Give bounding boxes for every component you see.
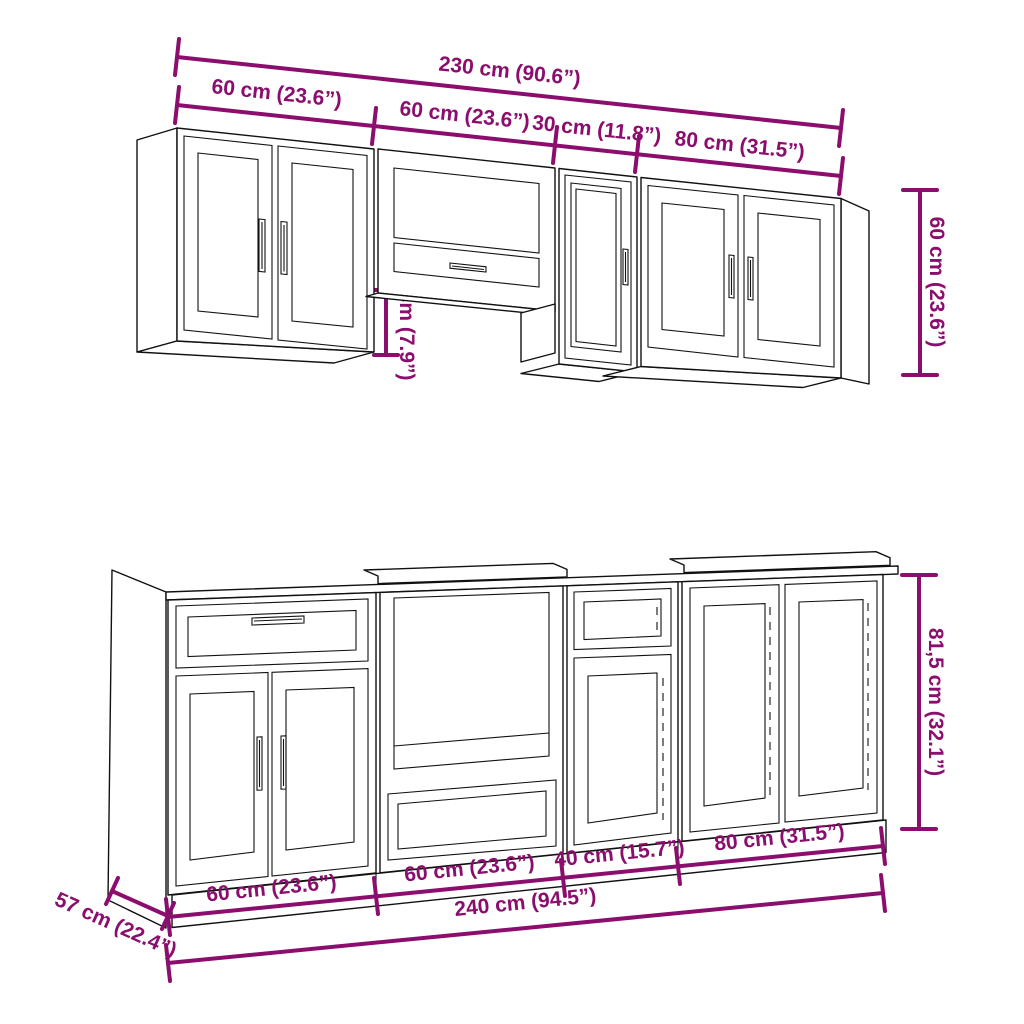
wall-cabinet-60-two-door	[137, 128, 374, 363]
wall-total-width-label: 230 cm (90.6”)	[438, 53, 582, 91]
wall-segment-label-0: 60 cm (23.6”)	[210, 75, 342, 112]
base-cab80-front	[682, 575, 883, 842]
glass-cab-side-step	[521, 304, 555, 362]
wall-height-label: 60 cm (23.6”)	[925, 217, 948, 348]
base-cabinet-80-two-door	[682, 575, 883, 842]
base-units-height-dimension: 81,5 cm (32.1”)	[902, 575, 947, 829]
wall-cab80-side-panel	[841, 199, 869, 385]
base-height-label: 81,5 cm (32.1”)	[924, 628, 947, 776]
base-side-panel	[108, 570, 166, 928]
base-cabinet-60-drawer-two-door	[168, 593, 376, 895]
wall-cab60-front	[177, 128, 374, 352]
wall-segment-label-1: 60 cm (23.6”)	[398, 97, 530, 134]
wall-segment-label-2: 30 cm (11.8”)	[531, 111, 662, 148]
wall-cab80-front	[641, 178, 841, 379]
base-cabinet-40-drawer-door	[567, 582, 678, 854]
kitchen-dimension-diagram: 230 cm (90.6”) 60 cm (23.6”) 60 cm (23.6…	[0, 0, 1024, 1024]
oven-cabinet-60	[380, 586, 563, 873]
oven-cab-front	[380, 586, 563, 873]
wall-cab60-side-panel	[137, 128, 177, 352]
diagram-canvas: 230 cm (90.6”) 60 cm (23.6”) 60 cm (23.6…	[0, 0, 1024, 1024]
wall-cabinet-80-two-door	[603, 178, 869, 388]
hood-cabinet-60	[366, 149, 555, 362]
hood-cab-front	[378, 149, 555, 311]
wall-units-height-dimension: 60 cm (23.6”)	[903, 190, 948, 375]
